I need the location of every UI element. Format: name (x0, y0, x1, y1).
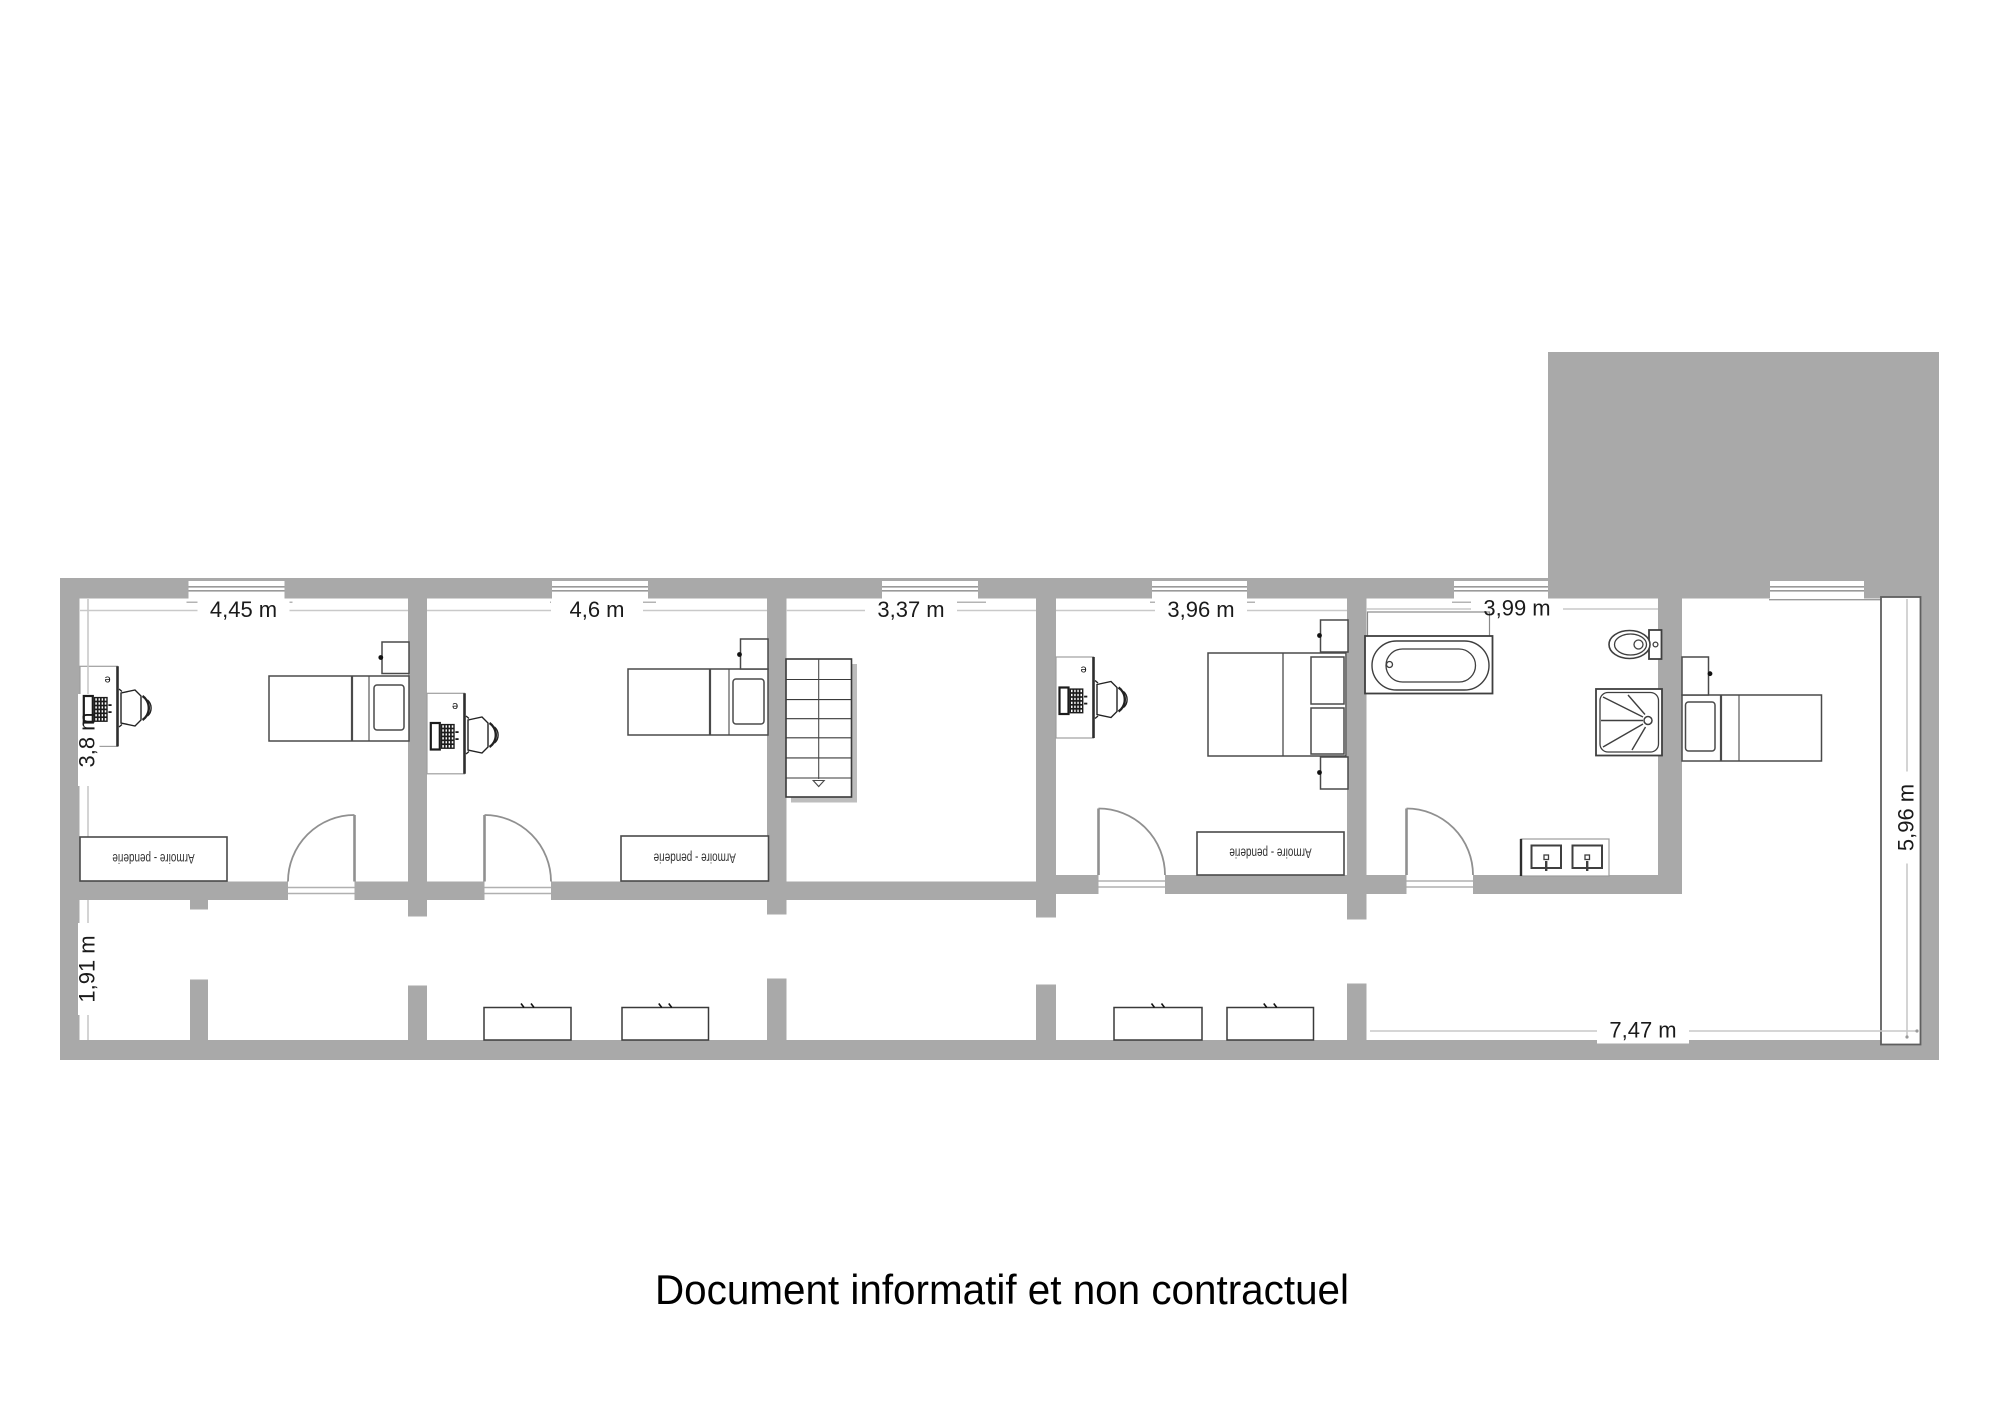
svg-text:e: e (452, 700, 458, 712)
svg-text:4,6 m: 4,6 m (569, 597, 624, 622)
svg-text:Armoire - penderie: Armoire - penderie (1229, 845, 1311, 861)
svg-text:3,96 m: 3,96 m (1167, 597, 1234, 622)
svg-text:1,91 m: 1,91 m (75, 935, 100, 1002)
svg-text:e: e (1080, 664, 1086, 676)
svg-text:3,99 m: 3,99 m (1483, 596, 1550, 621)
svg-text:e: e (104, 674, 110, 686)
svg-text:7,47 m: 7,47 m (1609, 1018, 1676, 1043)
svg-text:3,37 m: 3,37 m (877, 597, 944, 622)
svg-text:4,45 m: 4,45 m (210, 597, 277, 622)
svg-text:3,8 m: 3,8 m (75, 712, 100, 767)
svg-text:5,96 m: 5,96 m (1894, 784, 1919, 851)
svg-text:Document informatif et non con: Document informatif et non contractuel (655, 1266, 1349, 1313)
svg-text:Armoire - penderie: Armoire - penderie (112, 851, 194, 867)
svg-text:Armoire - penderie: Armoire - penderie (653, 850, 735, 866)
